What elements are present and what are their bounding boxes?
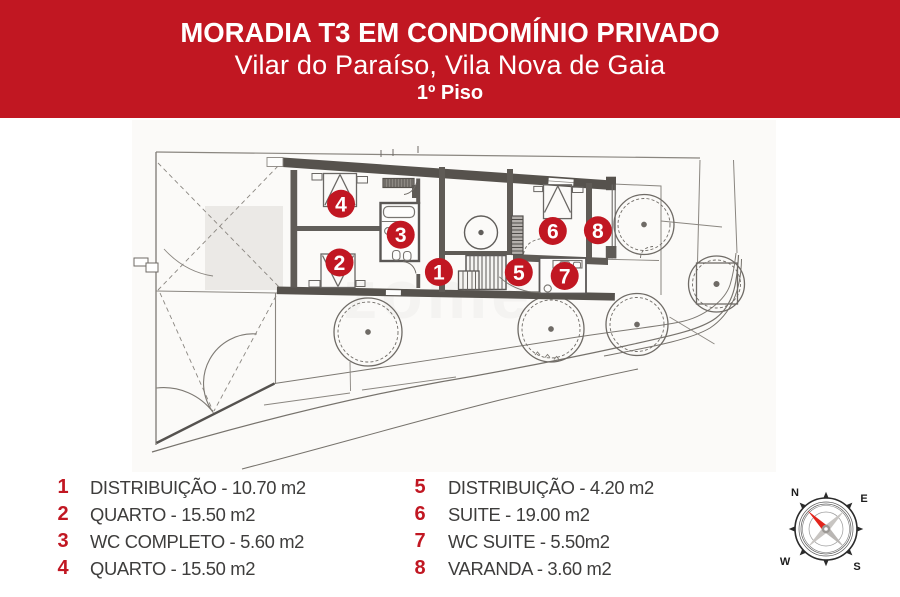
svg-text:2: 2	[334, 252, 346, 275]
svg-text:N: N	[791, 487, 799, 499]
svg-text:3: 3	[395, 224, 407, 247]
svg-text:6: 6	[547, 221, 559, 244]
svg-text:W: W	[780, 556, 791, 568]
svg-text:1: 1	[433, 262, 445, 285]
svg-text:7: 7	[559, 266, 571, 289]
svg-text:4: 4	[335, 193, 347, 216]
svg-text:E: E	[860, 493, 867, 505]
svg-text:S: S	[853, 561, 860, 573]
svg-text:5: 5	[513, 262, 525, 285]
svg-text:8: 8	[592, 220, 604, 243]
